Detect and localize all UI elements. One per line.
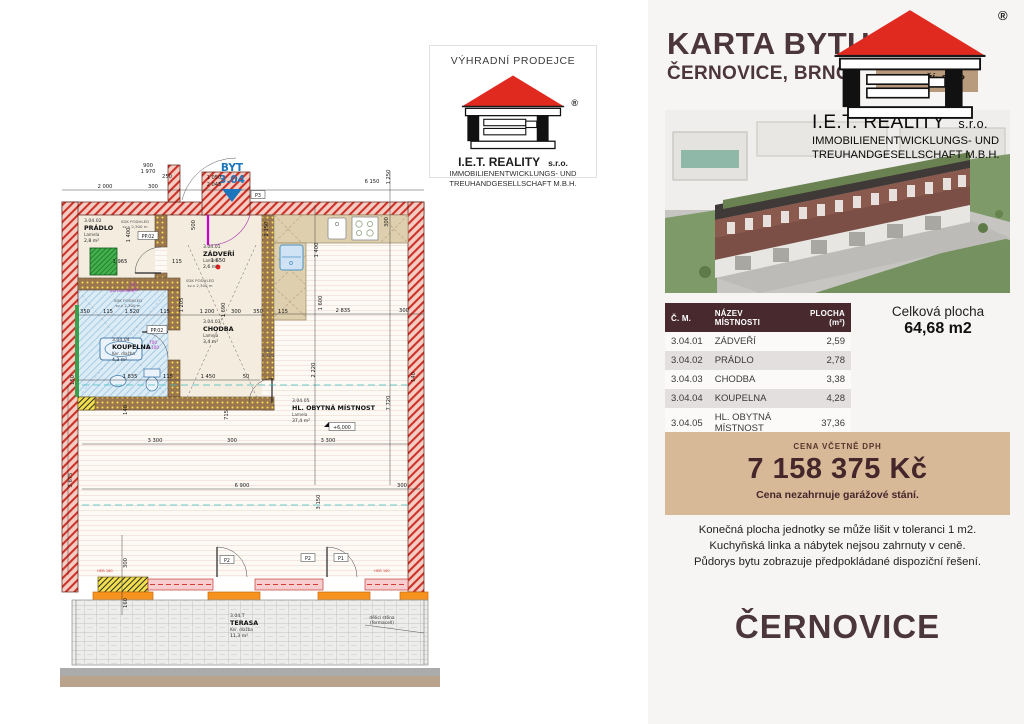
note-label: (fermacell) [370,620,394,626]
dimension-label: 1 970 [141,169,156,175]
marker-label: P3 [255,193,261,199]
dimension-label: 300 [231,309,241,315]
iet-logo-icon [806,2,1014,126]
room-area: 11,3 m² [230,633,248,639]
dimension-label: 150 [70,375,76,385]
dimension-label: 1 400 [314,243,320,258]
room-floor-type: Ker. dlažba [112,351,135,356]
disclaimer-line: Kuchyňská linka a nábytek nejsou zahrnut… [655,539,1020,555]
terrace [60,600,440,687]
location-title: ČERNOVICE [665,608,1010,646]
note-label: HEB 160 [374,569,390,573]
dimension-label: 3 300 [148,438,163,444]
dimension-label: 500 [191,220,197,230]
dimension-label: 115 [160,309,170,315]
dimension-label: 115 [278,309,288,315]
marker-label: P2 [224,558,230,564]
dimension-label: 115 [163,374,173,380]
room-floor-type: Lamela [203,333,219,338]
room-number-cell: 3.04.01 [665,332,709,351]
svg-text:BYT: BYT [221,162,244,174]
table-row: 3.04.02PRÁDLO2,78 [665,351,851,370]
dimension-label: 3 300 [321,438,336,444]
cooktop-icon [352,217,378,240]
wall-right [408,202,424,592]
room-name-cell: ZÁDVEŘÍ [709,332,797,351]
dimension-label: 6 900 [235,483,250,489]
dimension-label: 115 [103,309,113,315]
floor-plan: BYT 3.04 2 0003009001 9702501 0502 0456 … [60,155,440,700]
brand-line2: IMMOBILIENENTWICKLUNGS- UND [812,134,1018,148]
dimension-label: 2 000 [98,184,113,190]
room-name: CHODBA [203,325,234,333]
dimension-label: 50 [243,374,250,380]
room-name: KOUPELNA [112,343,151,351]
dimension-label: 250 [162,174,172,180]
dimension-label: 350 [80,309,90,315]
window-sill [208,592,260,600]
dimension-label: 1 835 [123,374,138,380]
dimension-label: 1 250 [386,170,392,185]
col-room-number: Č. M. [665,303,709,332]
dimension-label: 300 [148,184,158,190]
marker-label: P1 [338,556,344,562]
dimension-label: 1 965 [113,259,128,265]
note-label: HEB 160 [97,569,113,573]
exclusive-seller-box: VÝHRADNÍ PRODEJCE ® I.E.T. REALITYs.r.o.… [429,45,597,178]
table-row: 3.04.03CHODBA3,38 [665,370,851,389]
dimension-label: 2 835 [336,308,351,314]
room-name: TERASA [230,619,258,627]
room-name-cell: PRÁDLO [709,351,797,370]
price-label: CENA VČETNĚ DPH [665,442,1010,451]
disclaimer-line: Konečná plocha jednotky se může lišit v … [655,523,1020,539]
window-sill [400,592,428,600]
marker-label: PP.02 [151,328,164,334]
dimension-label: 1 205 [179,298,185,313]
room-number-cell: 3.04.02 [665,351,709,370]
dimension-label: 1 200 [200,309,215,315]
iet-logo-small-wrap: ® [452,70,574,159]
total-area-block: Celková plocha 64,68 m2 [862,304,1014,338]
kitchen-sink-icon [328,218,346,239]
price-note: Cena nezahrnuje garážové stání. [665,489,1010,501]
room-number-cell: 3.04.03 [665,370,709,389]
floor-plan-svg: BYT 3.04 2 0003009001 9702501 0502 0456 … [60,155,440,700]
dimension-label: 2 150 [264,222,270,237]
iet-logo-icon [452,70,574,154]
dimension-label: 300 [399,308,409,314]
col-room-area: PLOCHA (m²) [797,303,852,332]
total-area-label: Celková plocha [862,304,1014,319]
dimension-label: 1 600 [318,296,324,311]
dimension-label: 300 [227,438,237,444]
room-area-cell: 2,78 [797,351,852,370]
table-row: 3.04.04KOUPELNA4,28 [665,389,851,408]
exclusive-seller-label: VÝHRADNÍ PRODEJCE [430,55,596,67]
dimension-label: 7 720 [386,396,392,411]
room-area: 3,4 m² [203,339,218,345]
dimension-label: 2 220 [311,363,317,378]
dimension-label: 300 [123,558,129,568]
dimension-label: 715 [224,410,230,420]
room-number-cell: 3.04.04 [665,389,709,408]
dimension-label: 2 045 [207,182,222,188]
price-box: CENA VČETNĚ DPH 7 158 375 Kč Cena nezahr… [665,432,1010,515]
dimension-label: 1 520 [125,309,140,315]
room-name-cell: KOUPELNA [709,389,797,408]
note-label: sv.v 2,300 m [188,283,213,288]
dimension-label: 6 150 [365,179,380,185]
table-row: 3.04.01ZÁDVEŘÍ2,59 [665,332,851,351]
disclaimer-line: Půdorys bytu zobrazuje předpokládané dis… [655,555,1020,571]
marker-label: PP.02 [142,234,155,240]
registered-trademark-icon: ® [571,98,578,108]
washer-icon [280,245,303,270]
room-name: HL. OBYTNÁ MÍSTNOST [292,403,376,412]
room-area: 4,3 m² [112,357,127,363]
dimension-label: 1 690 [221,303,227,318]
dimension-label: 3 150 [316,495,322,510]
room-floor-type: Lamela [203,258,219,263]
brand-line2: IMMOBILIENENTWICKLUNGS- UND [430,169,596,179]
dimension-label: 140 [123,405,129,415]
dimension-label: 1 450 [201,374,216,380]
dimension-label: 300 [397,483,407,489]
room-name: PRÁDLO [84,223,114,232]
dimension-label: 140 [411,372,417,382]
room-area: 2,6 m² [203,264,218,270]
dimension-label: 160 [123,598,129,608]
dimension-label: 1 050 [207,175,222,181]
room-floor-type: Lamela [292,412,308,417]
room-area-cell: 2,59 [797,332,852,351]
table-header-row: Č. M. NÁZEV MÍSTNOSTI PLOCHA (m²) [665,303,851,332]
room-name-cell: CHODBA [709,370,797,389]
note-label: 2 100 [127,287,139,292]
note-label: sv.v 2,300 m [116,303,141,308]
svg-text:3.04: 3.04 [219,174,245,186]
window-sill [318,592,370,600]
dimension-label: 3 675 [68,473,74,488]
room-name: ZÁDVEŘÍ [203,249,235,258]
note-label: dělicí stěna [369,614,394,621]
exclusive-company-block: I.E.T. REALITYs.r.o. IMMOBILIENENTWICKLU… [430,155,596,189]
note-label: 2 100 [262,353,274,358]
karta-bytu-page: KARTA BYTU ČERNOVICE, BRNO PODLAŽÍ: 3.NP… [0,0,1024,724]
total-area-value: 64,68 m2 [862,320,1014,338]
dimension-label: 115 [172,259,182,265]
room-area-cell: 3,38 [797,370,852,389]
registered-trademark-icon: ® [998,8,1008,23]
marker-label: +6,000 [333,425,351,431]
room-area: 37,4 m² [292,418,310,424]
dimension-label: 350 [253,309,263,315]
dimension-label: 1 400 [126,228,132,243]
brand-line3: TREUHANDGESELLSCHAFT M.B.H. [812,148,1018,162]
col-room-name: NÁZEV MÍSTNOSTI [709,303,797,332]
marker-label: P2 [305,556,311,562]
room-floor-type: Lamela [84,232,100,237]
brand-line3: TREUHANDGESELLSCHAFT M.B.H. [430,179,596,189]
disclaimer-block: Konečná plocha jednotky se může lišit v … [655,523,1020,570]
room-floor-type: Ker. dlažba [230,627,253,632]
price-value: 7 158 375 Kč [665,453,1010,486]
room-area: 2,8 m² [84,238,99,244]
dimension-label: 300 [384,217,390,227]
note-label: sv.v 2,300 m [123,224,148,229]
room-area-cell: 4,28 [797,389,852,408]
